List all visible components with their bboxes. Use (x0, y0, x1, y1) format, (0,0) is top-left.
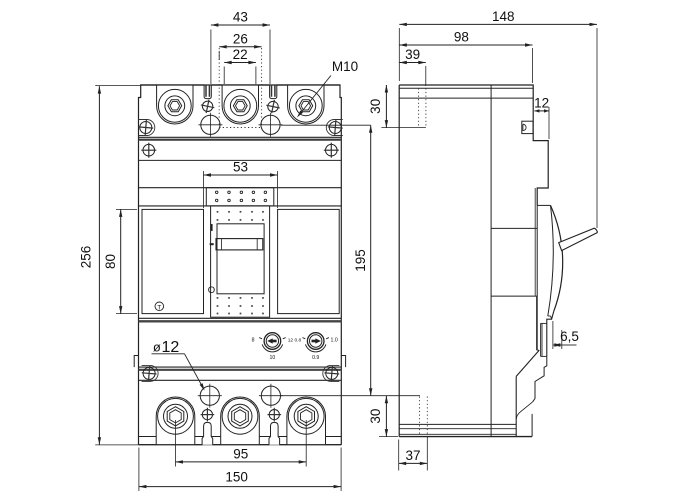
svg-text:12: 12 (162, 339, 180, 356)
svg-text:30: 30 (368, 409, 383, 424)
svg-text:37: 37 (405, 448, 420, 463)
svg-text:148: 148 (492, 9, 515, 24)
svg-text:256: 256 (78, 246, 93, 269)
svg-text:1.0: 1.0 (331, 338, 338, 344)
svg-text:195: 195 (353, 249, 368, 272)
svg-text:30: 30 (368, 99, 383, 114)
svg-text:22: 22 (233, 47, 248, 62)
svg-text:O: O (208, 285, 215, 296)
svg-text:T: T (157, 304, 161, 311)
svg-text:98: 98 (454, 30, 469, 45)
svg-text:80: 80 (103, 254, 118, 269)
svg-text:43: 43 (233, 10, 248, 25)
svg-text:0.8: 0.8 (295, 338, 302, 344)
svg-text:6,5: 6,5 (560, 329, 579, 344)
svg-text:0.9: 0.9 (312, 355, 319, 361)
svg-text:12: 12 (534, 95, 549, 110)
svg-text:150: 150 (225, 470, 248, 485)
svg-text:95: 95 (233, 446, 248, 461)
svg-text:ø: ø (153, 340, 161, 355)
svg-text:39: 39 (405, 47, 420, 62)
svg-text:53: 53 (233, 160, 248, 175)
svg-text:12: 12 (288, 338, 294, 344)
svg-text:8: 8 (252, 338, 255, 344)
svg-text:M10: M10 (332, 59, 358, 74)
svg-text:10: 10 (270, 355, 276, 361)
svg-text:26: 26 (233, 31, 248, 46)
